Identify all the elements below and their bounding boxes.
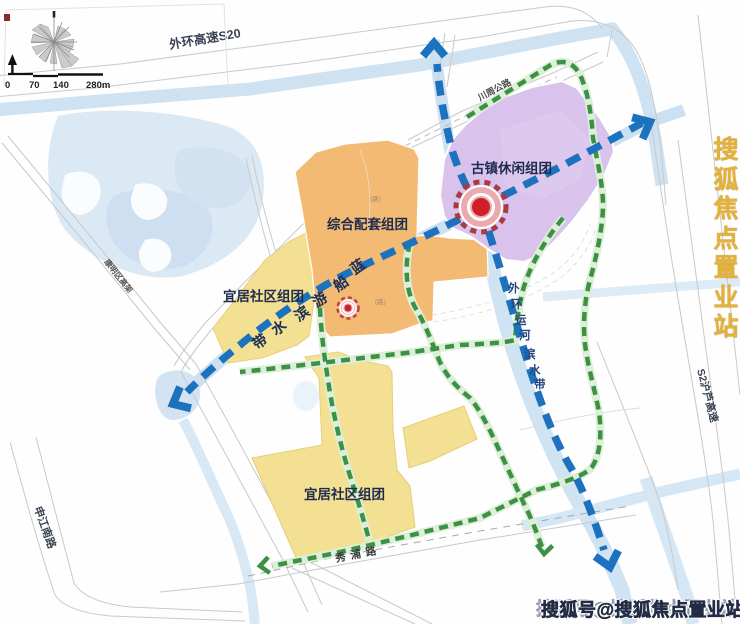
svg-text:(路): (路)	[375, 297, 386, 306]
svg-text:水: 水	[529, 363, 541, 377]
svg-text:宜居社区组团: 宜居社区组团	[223, 288, 304, 304]
svg-text:带: 带	[534, 377, 546, 391]
svg-text:综合配套组团: 综合配套组团	[327, 216, 408, 232]
svg-text:环: 环	[511, 298, 523, 311]
svg-text:宜居社区组团: 宜居社区组团	[304, 486, 385, 502]
svg-text:280m: 280m	[86, 80, 110, 91]
svg-text:140: 140	[53, 80, 69, 91]
svg-text:0: 0	[5, 80, 10, 91]
svg-text:古镇休闲组团: 古镇休闲组团	[471, 160, 552, 176]
svg-text:外: 外	[507, 281, 520, 295]
svg-text:70: 70	[29, 80, 40, 91]
svg-text:(路): (路)	[370, 194, 381, 203]
svg-text:滨: 滨	[524, 347, 536, 361]
svg-text:运: 运	[515, 314, 527, 327]
svg-text:河: 河	[519, 328, 531, 342]
